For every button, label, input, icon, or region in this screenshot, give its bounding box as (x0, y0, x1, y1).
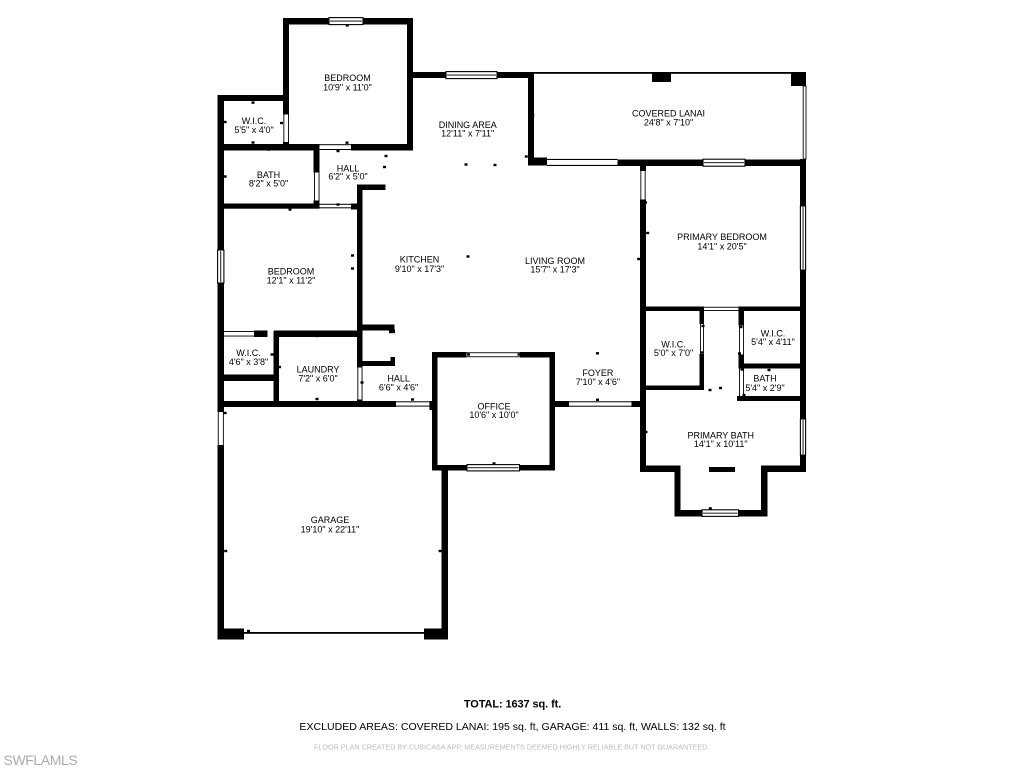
svg-text:SWFLAMLS: SWFLAMLS (4, 752, 78, 768)
svg-text:24'8" x 7'10": 24'8" x 7'10" (644, 118, 693, 128)
svg-text:4'6" x 3'8": 4'6" x 3'8" (229, 357, 268, 367)
svg-text:5'4" x 4'11": 5'4" x 4'11" (751, 337, 795, 347)
svg-text:TOTAL: 1637 sq. ft.: TOTAL: 1637 sq. ft. (464, 698, 561, 710)
svg-text:19'10" x 22'11": 19'10" x 22'11" (301, 525, 360, 535)
svg-text:10'9" x 11'0": 10'9" x 11'0" (323, 83, 372, 93)
svg-text:EXCLUDED AREAS: COVERED LANAI:: EXCLUDED AREAS: COVERED LANAI: 195 sq. f… (299, 721, 725, 733)
svg-text:9'10" x 17'3": 9'10" x 17'3" (395, 264, 444, 274)
svg-text:5'0" x 7'0": 5'0" x 7'0" (654, 348, 693, 358)
svg-text:12'11" x 7'11": 12'11" x 7'11" (441, 129, 494, 139)
svg-text:GARAGE: GARAGE (311, 515, 350, 525)
svg-text:15'7" x 17'3": 15'7" x 17'3" (530, 265, 579, 275)
svg-text:8'2" x 5'0": 8'2" x 5'0" (249, 179, 288, 189)
svg-text:12'1" x 11'2": 12'1" x 11'2" (267, 276, 316, 286)
svg-text:5'4" x 2'9": 5'4" x 2'9" (745, 383, 784, 393)
svg-text:10'6" x 10'0": 10'6" x 10'0" (469, 410, 518, 420)
svg-text:6'2" x 5'0": 6'2" x 5'0" (328, 172, 367, 182)
svg-text:7'10" x 4'6": 7'10" x 4'6" (576, 377, 620, 387)
svg-text:14'1" x 10'11": 14'1" x 10'11" (694, 439, 748, 449)
svg-text:14'1" x 20'5": 14'1" x 20'5" (697, 241, 746, 251)
svg-text:7'2" x 6'0": 7'2" x 6'0" (298, 373, 337, 383)
svg-text:5'5" x 4'0": 5'5" x 4'0" (234, 125, 273, 135)
svg-text:FLOOR PLAN CREATED BY CUBICASA: FLOOR PLAN CREATED BY CUBICASA APP. MEAS… (314, 742, 709, 751)
svg-text:6'6" x 4'6": 6'6" x 4'6" (379, 383, 418, 393)
